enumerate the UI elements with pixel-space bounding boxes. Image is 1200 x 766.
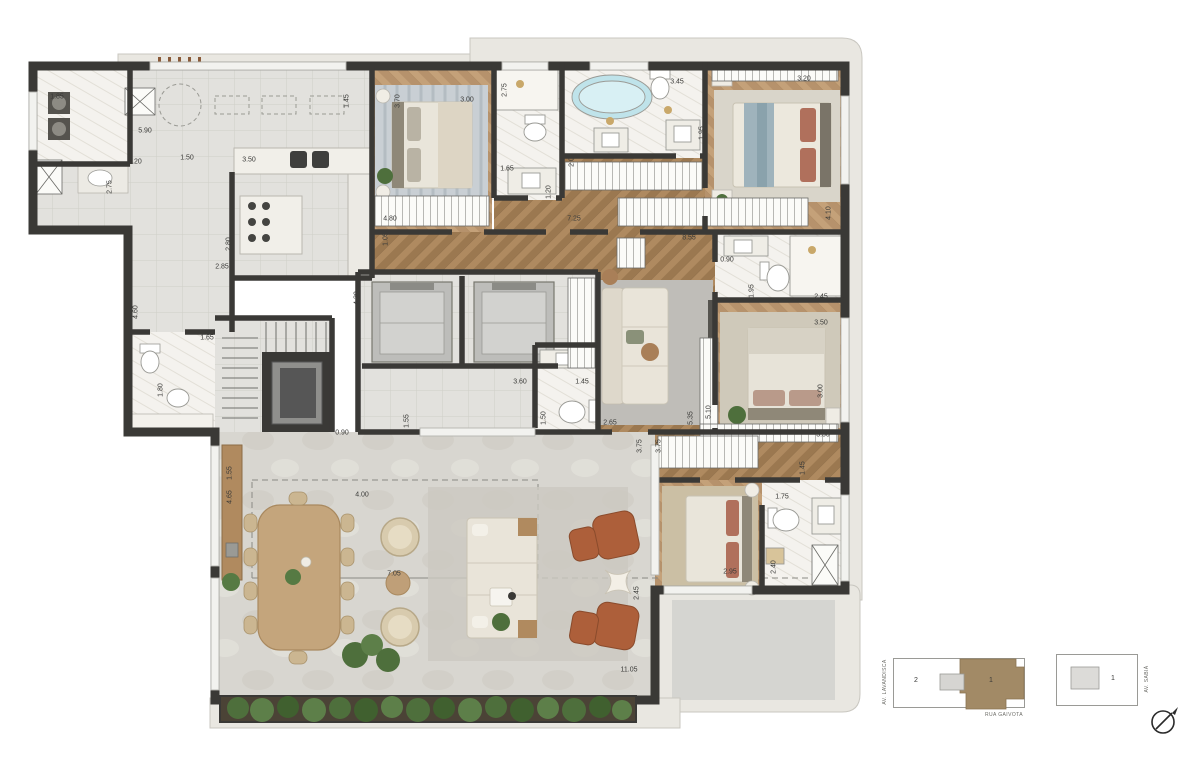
floor-plan-canvas <box>0 0 1200 766</box>
family-room <box>600 269 714 425</box>
floor-plan-page: 1.855.901.451.201.503.502.752.803.703.00… <box>0 0 1200 766</box>
keyplan-unit-2-label: 2 <box>914 677 918 684</box>
street-label-gaivota: RUA GAIVOTA <box>985 712 1023 718</box>
bedroom-1 <box>375 85 488 205</box>
street-label-sabia: AV. SABIÁ <box>1144 654 1150 704</box>
bedroom-4 <box>662 483 759 595</box>
keyplan-unit-1-label: 1 <box>989 677 993 684</box>
service-elevator <box>262 352 332 432</box>
keyplan-tower-unit-label: 1 <box>1111 675 1115 682</box>
living-sofa <box>467 518 537 638</box>
keyplan-tower-shape <box>1057 655 1137 705</box>
bedroom-3 <box>720 312 840 428</box>
keyplan-unit-shape <box>894 659 1024 713</box>
dining-table <box>244 492 354 664</box>
keyplan-tower: 1 <box>1056 654 1138 706</box>
street-label-lavandisca: AV. LAVANDISCA <box>882 652 888 712</box>
elevator-1 <box>372 282 452 362</box>
north-arrow <box>1152 707 1178 733</box>
keyplan-building: 2 1 <box>893 658 1025 708</box>
planter <box>220 696 636 722</box>
